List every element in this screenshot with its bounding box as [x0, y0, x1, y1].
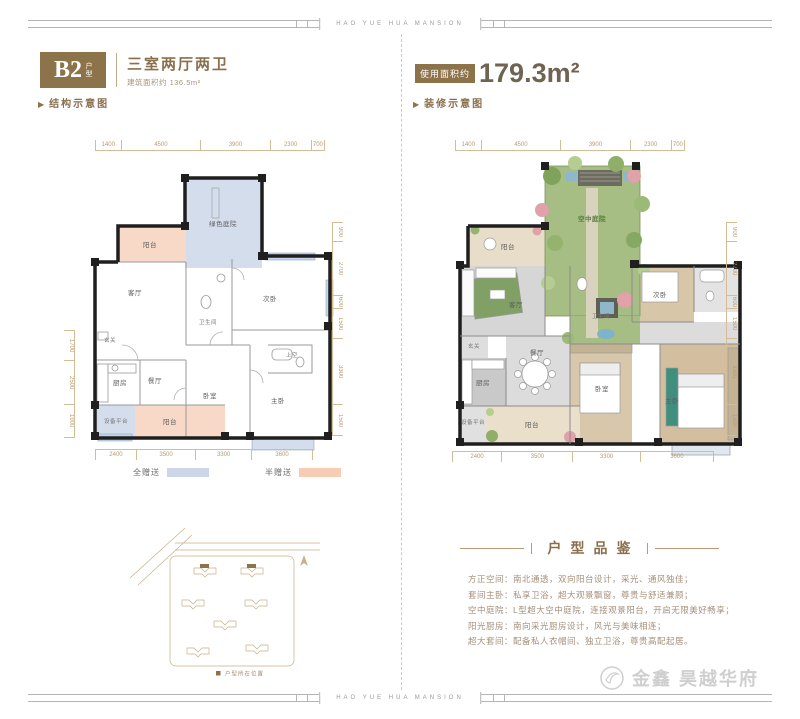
list-item: 套间主卧：私享卫浴，超大观景飘窗，尊贵与舒适兼顾；	[468, 588, 753, 604]
room-label: 阳台	[525, 419, 539, 429]
dims-left-left-plan: 170025001900	[64, 330, 75, 438]
room-label: 客厅	[509, 299, 523, 309]
list-item: 3300	[333, 339, 343, 405]
room-label: 玄关	[104, 336, 116, 344]
right-header: 使用面积约 179.3m²	[415, 58, 580, 89]
list-item: 2400	[96, 450, 137, 460]
room-label: 卧室	[203, 390, 217, 400]
list-item: 2700	[727, 242, 737, 296]
map-legend-swatch	[216, 671, 221, 676]
gift-legend: 全赠送 半赠送	[133, 467, 341, 478]
list-item: 方正空间：南北通透，双向阳台设计，采光、通风独佳；	[468, 572, 753, 588]
north-arrow-icon	[300, 555, 308, 566]
highlighted-units	[200, 564, 256, 568]
border-tick	[504, 695, 505, 701]
list-item: 3600	[641, 452, 713, 462]
list-item: 600	[333, 296, 343, 309]
list-item: 4500	[122, 140, 202, 150]
list-item: 1400	[456, 140, 482, 150]
brochure-page: HAO YUE HUA MANSION HAO YUE HUA MANSION …	[0, 0, 800, 719]
room-label: 餐厅	[530, 347, 544, 357]
room-label: 主卧	[665, 395, 679, 405]
list-item: 3500	[137, 450, 196, 460]
room-label: 客厅	[128, 287, 142, 297]
list-item: 700	[312, 140, 324, 150]
dims-right-left-plan: 9002700600150033001500	[332, 222, 343, 436]
brand-logo-icon	[598, 664, 626, 692]
header-divider	[116, 53, 117, 87]
list-item: 3900	[561, 140, 630, 150]
room-label: 设备平台	[104, 417, 128, 425]
list-item: 900	[727, 223, 737, 242]
list-item: 2700	[333, 242, 343, 296]
room-label: 绿色庭院	[209, 218, 237, 228]
list-item: 1500	[727, 405, 737, 435]
room-label: 主卧	[271, 395, 285, 405]
edge-text: HAO YUE HUA MANSION	[319, 18, 481, 30]
dims-top-left-plan: 1400450039002300700	[95, 140, 325, 151]
room-label: 卫生间	[199, 318, 217, 326]
list-item: 2300	[271, 140, 312, 150]
room-label: 次卧	[653, 289, 667, 299]
room-label: 餐厅	[148, 375, 162, 385]
feature-list: 方正空间：南北通透，双向阳台设计，采光、通风独佳；套间主卧：私享卫浴，超大观景飘…	[468, 572, 753, 650]
unit-code-badge: B2 户型	[40, 52, 106, 88]
room-label: 厨房	[476, 377, 490, 387]
list-item: 600	[727, 296, 737, 309]
border-tick	[504, 21, 505, 27]
border-tick	[493, 21, 494, 27]
unit-code-suffix: 户型	[85, 62, 92, 78]
title-bar-left	[531, 543, 532, 554]
unit-title: 三室两厅两卫	[127, 53, 229, 74]
border-tick	[296, 695, 297, 701]
roads	[130, 528, 320, 666]
dims-top-right-plan: 1400450039002300700	[455, 140, 685, 151]
structural-floor-plan: 阳台 绿色庭院 客厅 卫生间 次卧 玄关 厨房 餐厅 卧室 主卧 上空 设备平台…	[60, 150, 400, 470]
list-item: 700	[672, 140, 684, 150]
brand-name: 金鑫 昊越华府	[632, 665, 759, 691]
list-item: 3300	[727, 339, 737, 405]
edge-text: HAO YUE HUA MANSION	[319, 692, 481, 704]
room-label: 设备平台	[461, 418, 485, 426]
list-item: 空中庭院：L型超大空中庭院，连接观景阳台，开启无限美好畅享；	[468, 603, 753, 619]
legend-label: 半赠送	[265, 467, 292, 478]
gift-zones	[95, 178, 314, 450]
list-item: 3600	[252, 450, 312, 460]
list-item: 3900	[201, 140, 270, 150]
room-label: 卫生间	[592, 312, 610, 320]
built-area-value: 136.5m²	[170, 78, 201, 87]
border-tick	[296, 21, 297, 27]
legend-swatch-pink	[299, 468, 341, 477]
decor-diagram-label: ▶装修示意图	[413, 95, 484, 110]
border-tick	[307, 695, 308, 701]
decorated-floor-plan: 阳台 空中庭院 客厅 玄关 厨房 餐厅 卫生间 卧室 次卧 主卧 设备平台 阳台	[420, 148, 750, 470]
legend-swatch-blue	[167, 468, 209, 477]
legend-half-gift: 半赠送	[265, 467, 341, 478]
legend-full-gift: 全赠送	[133, 467, 209, 478]
site-plan-map: 户型所在位置	[130, 523, 325, 695]
dims-right-right-plan: 9002700600150033001500	[726, 222, 737, 436]
list-item: 1700	[64, 331, 74, 361]
room-label: 上空	[286, 351, 298, 359]
list-item: 2400	[453, 452, 502, 462]
room-label: 玄关	[468, 342, 480, 350]
list-item: 超大套间：配备私人衣帽间、独立卫浴，尊贵高配起居。	[468, 634, 753, 650]
list-item: 3500	[502, 452, 573, 462]
room-label: 卧室	[595, 383, 609, 393]
left-header: B2 户型 三室两厅两卫 建筑面积约 136.5m²	[40, 52, 229, 88]
buildings	[182, 568, 268, 657]
room-label: 阳台	[501, 241, 515, 251]
section-title-text: 户型品鉴	[539, 538, 640, 558]
list-item: 1500	[333, 309, 343, 340]
feature-section-title: 户型品鉴	[430, 538, 748, 558]
usable-area-value: 179.3m²	[479, 58, 580, 89]
list-item: 3300	[196, 450, 252, 460]
pointer-icon: ▶	[413, 100, 421, 109]
border-tick	[307, 21, 308, 27]
dims-bottom-left-plan: 2400350033003600	[95, 449, 313, 460]
list-item: 1500	[333, 405, 343, 435]
bottom-border-rule: HAO YUE HUA MANSION	[28, 694, 772, 702]
brand-logo: 金鑫 昊越华府	[598, 664, 759, 692]
room-label: 阳台	[143, 239, 157, 249]
list-item: 1500	[727, 309, 737, 340]
list-item: 4500	[482, 140, 562, 150]
structure-diagram-label: ▶结构示意图	[38, 95, 109, 110]
top-border-rule: HAO YUE HUA MANSION	[28, 20, 772, 28]
map-legend-label: 户型所在位置	[225, 670, 264, 678]
list-item: 900	[333, 223, 343, 242]
room-label: 空中庭院	[578, 213, 606, 223]
unit-code: B2	[54, 57, 82, 84]
built-area-note: 建筑面积约 136.5m²	[127, 77, 229, 88]
room-label: 厨房	[113, 377, 127, 387]
legend-label: 全赠送	[133, 467, 160, 478]
room-label: 次卧	[263, 293, 277, 303]
built-area-label: 建筑面积约	[127, 78, 167, 87]
list-item: 阳光厨房：南向采光厨房设计，风光与美味相连；	[468, 619, 753, 635]
list-item: 1900	[64, 405, 74, 437]
border-tick	[493, 695, 494, 701]
list-item: 1400	[96, 140, 122, 150]
list-item: 2500	[64, 361, 74, 405]
pointer-icon: ▶	[38, 100, 46, 109]
door-swings	[122, 268, 263, 400]
list-item: 2300	[631, 140, 672, 150]
center-fold-line	[401, 34, 402, 690]
title-rule-left	[460, 548, 524, 549]
dims-bottom-right-plan: 2400350033003600	[452, 451, 714, 462]
title-rule-right	[655, 548, 719, 549]
title-bar-right	[647, 543, 648, 554]
list-item: 3300	[573, 452, 640, 462]
room-label: 阳台	[163, 416, 177, 426]
usable-area-label: 使用面积约	[415, 64, 475, 83]
